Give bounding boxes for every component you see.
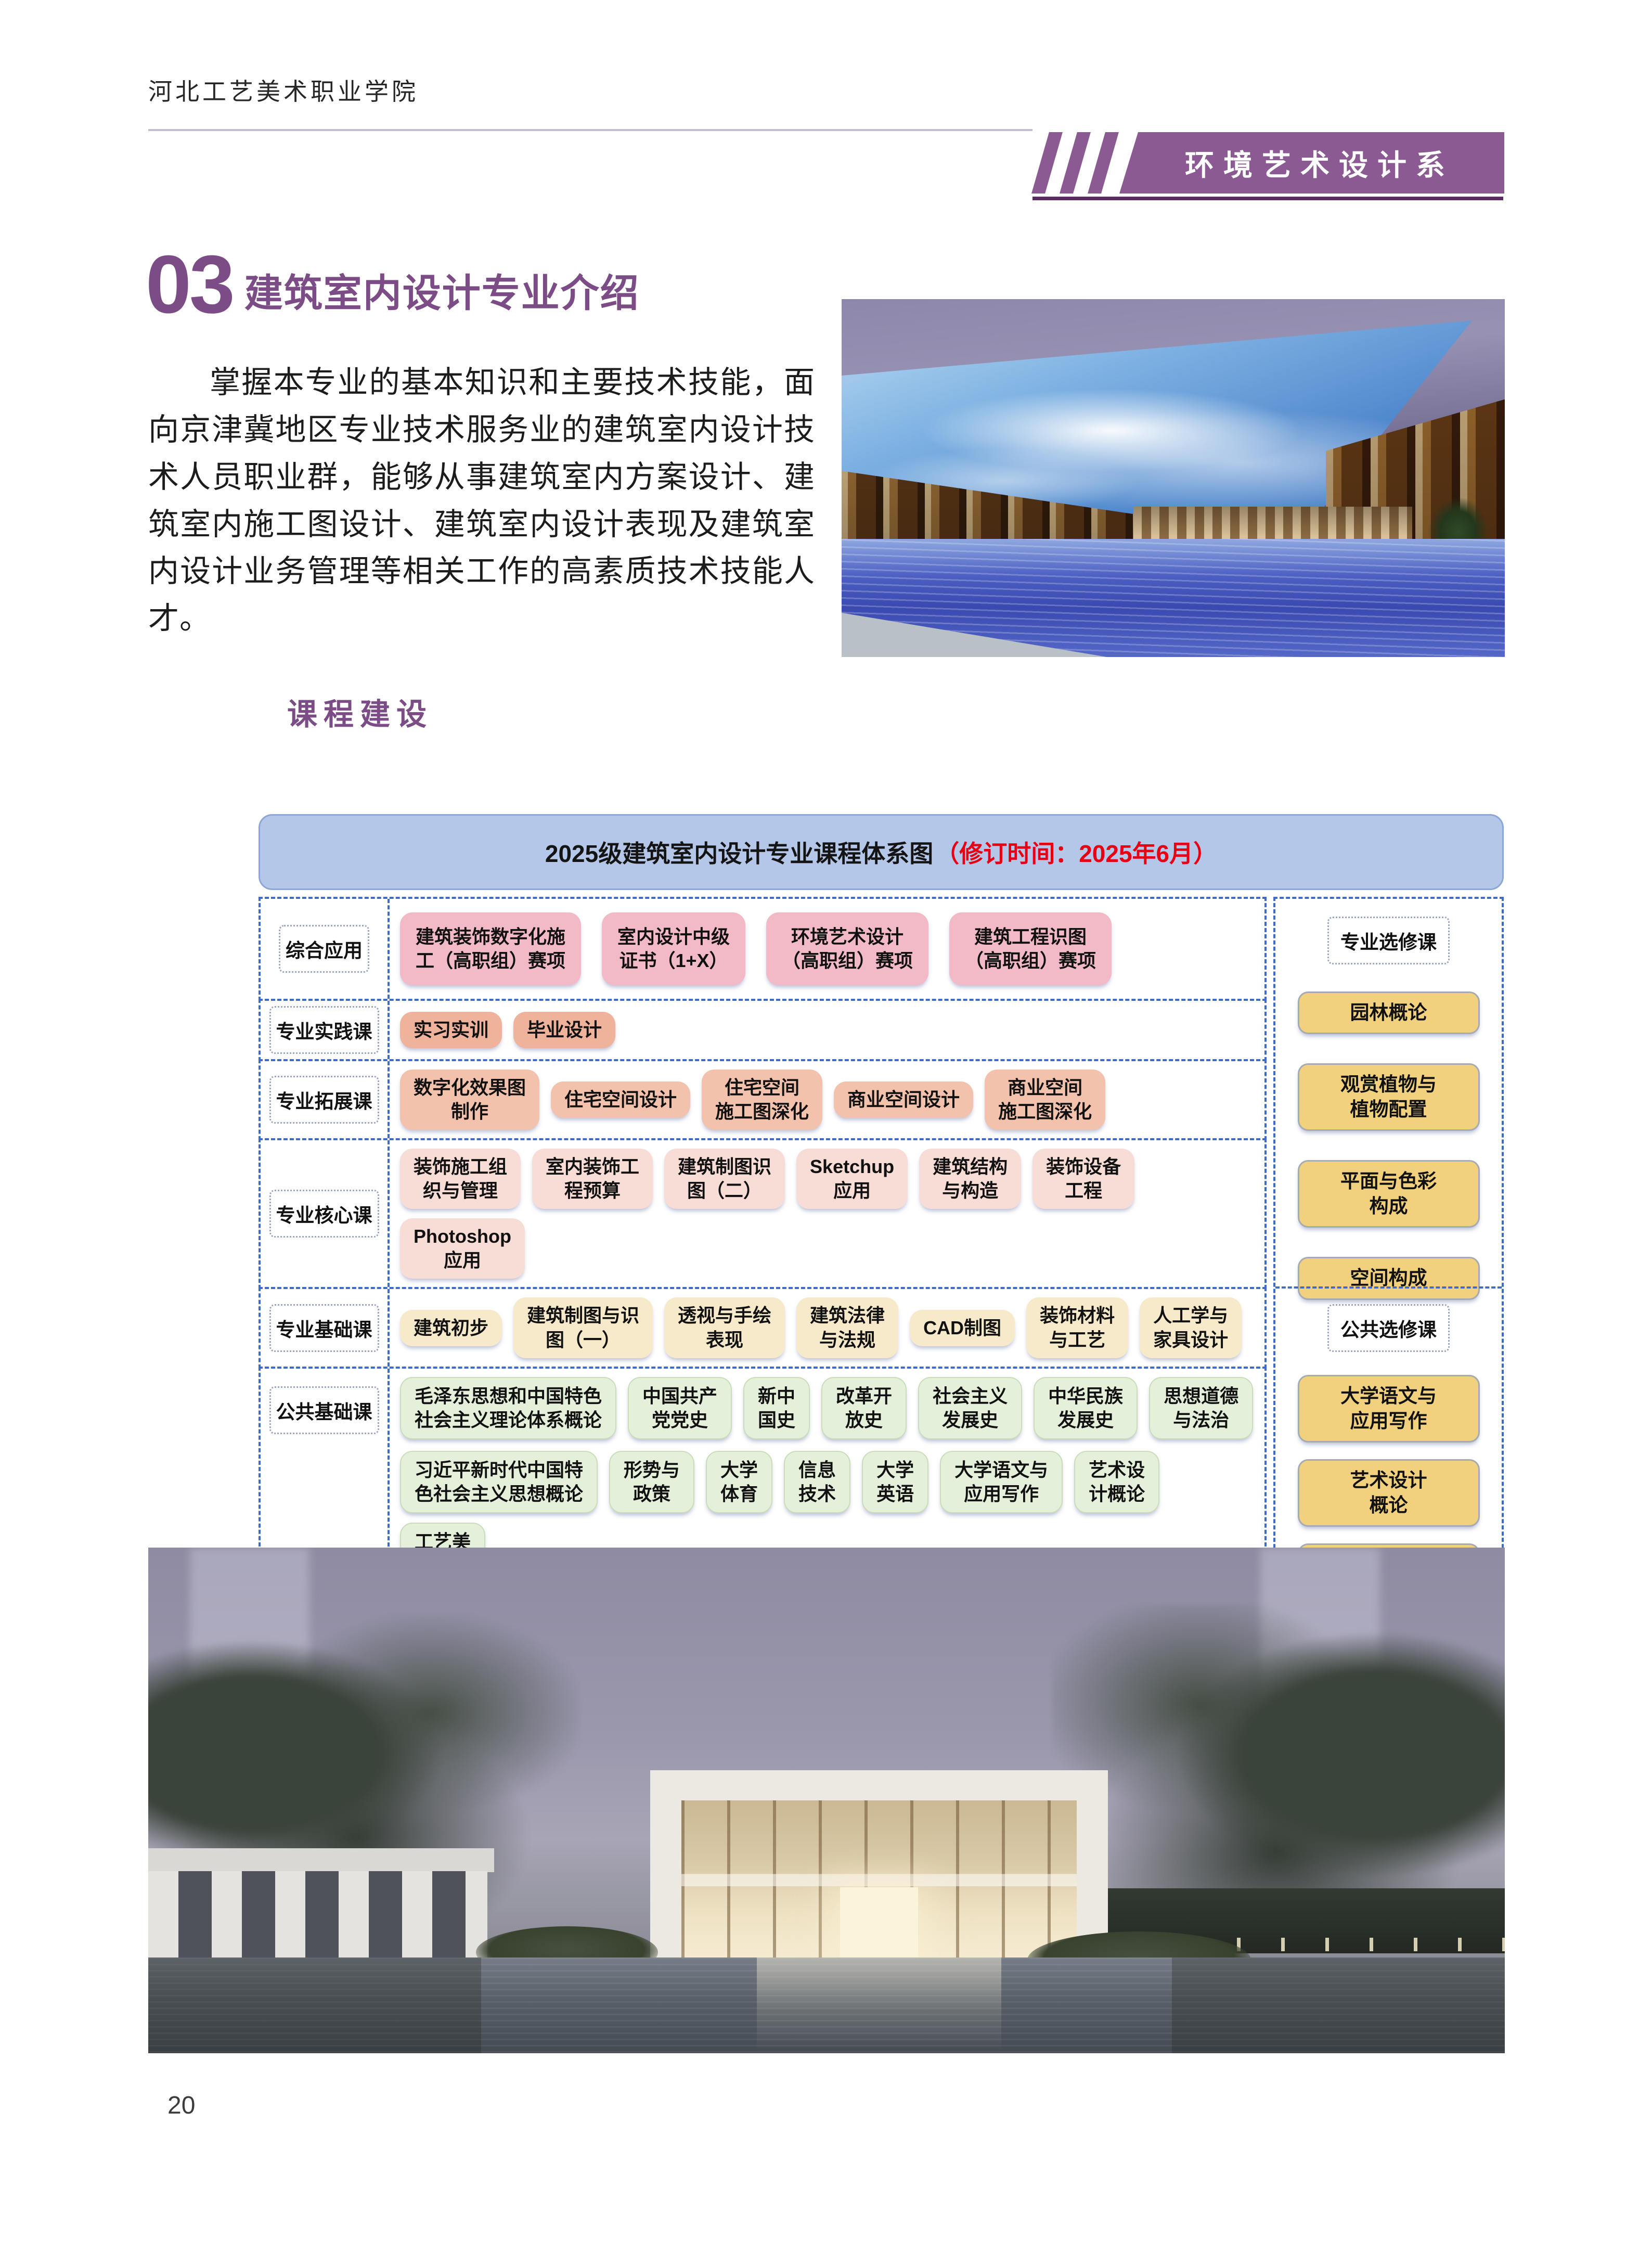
- course-line: 建筑初步建筑制图与识 图（一）透视与手绘 表现建筑法律 与法规CAD制图装饰材料…: [400, 1297, 1254, 1358]
- course-box: 信息 技术: [784, 1451, 850, 1513]
- course-box: 装饰施工组 织与管理: [400, 1149, 521, 1209]
- header-divider-line: [148, 129, 1032, 131]
- course-box: Photoshop 应用: [400, 1218, 525, 1279]
- course-box: 室内装饰工 程预算: [532, 1149, 653, 1209]
- course-lines: 实习实训毕业设计: [390, 1001, 1264, 1059]
- electives-label: 专业选修课: [1327, 917, 1450, 964]
- elective-course-box: 平面与色彩 构成: [1298, 1160, 1480, 1228]
- electives-section-professional: 专业选修课园林概论观赏植物与 植物配置平面与色彩 构成空间构成: [1275, 899, 1502, 1286]
- course-box: CAD制图: [910, 1310, 1015, 1346]
- course-box: 中华民族 发展史: [1034, 1377, 1138, 1439]
- row-label: 专业拓展课: [269, 1076, 379, 1124]
- course-box: 透视与手绘 表现: [664, 1297, 785, 1358]
- row-label-cell: 综合应用: [261, 899, 390, 999]
- course-box: 大学语文与 应用写作: [940, 1451, 1063, 1513]
- course-box: 形势与 政策: [609, 1451, 694, 1513]
- course-box: 大学 体育: [706, 1451, 772, 1513]
- row-label: 专业实践课: [269, 1006, 379, 1054]
- college-name: 河北工艺美术职业学院: [148, 73, 419, 107]
- course-box: 建筑结构 与构造: [919, 1149, 1021, 1209]
- indoor-pool-photo: [842, 299, 1505, 657]
- course-box: 习近平新时代中国特 色社会主义思想概论: [400, 1451, 598, 1513]
- course-box: 商业空间 施工图深化: [985, 1070, 1105, 1130]
- course-line: 建筑装饰数字化施 工（高职组）赛项室内设计中级 证书（1+X）环境艺术设计 （高…: [400, 912, 1254, 985]
- course-box: 建筑初步: [400, 1310, 502, 1346]
- course-box: 毛泽东思想和中国特色 社会主义理论体系概论: [400, 1377, 616, 1439]
- course-row: 专业实践课实习实训毕业设计: [259, 999, 1267, 1061]
- row-label-cell: 专业实践课: [261, 1001, 390, 1059]
- water-tree-reflection: [1172, 1957, 1505, 2053]
- banner-stripe-icon: [1088, 132, 1119, 194]
- course-box: 环境艺术设计 （高职组）赛项: [766, 912, 928, 985]
- water-light-reflection: [757, 1957, 1001, 2053]
- elective-course-box: 大学语文与 应用写作: [1298, 1375, 1480, 1443]
- course-box: 住宅空间设计: [551, 1081, 690, 1118]
- section-title-row: 03 建筑室内设计专业介绍: [146, 249, 640, 321]
- course-box: 实习实训: [400, 1012, 502, 1048]
- row-label-cell: 专业核心课: [261, 1140, 390, 1287]
- row-label: 专业核心课: [269, 1190, 379, 1238]
- course-line: 实习实训毕业设计: [400, 1012, 1254, 1048]
- course-lines: 建筑初步建筑制图与识 图（一）透视与手绘 表现建筑法律 与法规CAD制图装饰材料…: [390, 1289, 1264, 1366]
- course-box: 数字化效果图 制作: [400, 1070, 539, 1130]
- reflecting-pool: [148, 1957, 1505, 2053]
- pavilion-frame: [650, 1770, 1108, 1976]
- diagram-title-bar: 2025级建筑室内设计专业课程体系图 （修订时间：2025年6月）: [259, 814, 1504, 890]
- row-label-cell: 专业基础课: [261, 1289, 390, 1366]
- course-box: 人工学与 家具设计: [1140, 1297, 1242, 1358]
- course-box: 建筑制图与识 图（一）: [513, 1297, 653, 1358]
- intro-paragraph: 掌握本专业的基本知识和主要技术技能，面向京津冀地区专业技术服务业的建筑室内设计技…: [148, 359, 815, 642]
- row-label: 专业基础课: [269, 1304, 379, 1352]
- row-label: 综合应用: [279, 925, 369, 973]
- course-box: 建筑装饰数字化施 工（高职组）赛项: [400, 912, 581, 985]
- row-label: 公共基础课: [269, 1386, 379, 1434]
- course-box: 艺术设 计概论: [1074, 1451, 1159, 1513]
- course-box: 建筑制图识 图（二）: [664, 1149, 785, 1209]
- building-photo: [148, 1548, 1505, 2053]
- department-banner: 环境艺术设计系: [1119, 132, 1504, 194]
- course-row: 综合应用建筑装饰数字化施 工（高职组）赛项室内设计中级 证书（1+X）环境艺术设…: [259, 897, 1267, 1001]
- section-title: 建筑室内设计专业介绍: [244, 262, 640, 321]
- course-box: Sketchup 应用: [796, 1149, 908, 1209]
- elective-course-box: 艺术设计 概论: [1298, 1459, 1480, 1527]
- course-box: 装饰材料 与工艺: [1026, 1297, 1128, 1358]
- course-line: 毛泽东思想和中国特色 社会主义理论体系概论中国共产 党党史新中 国史改革开 放史…: [400, 1377, 1254, 1439]
- elective-course-box: 园林概论: [1298, 991, 1480, 1034]
- course-lines: 装饰施工组 织与管理室内装饰工 程预算建筑制图识 图（二）Sketchup 应用…: [390, 1140, 1264, 1287]
- course-box: 思想道德 与法治: [1149, 1377, 1253, 1439]
- diagram-revision-note: （修订时间：2025年6月）: [935, 835, 1217, 869]
- page-number: 20: [167, 2091, 195, 2120]
- courses-heading: 课程建设: [287, 690, 433, 733]
- banner-stripe-icon: [1031, 132, 1063, 194]
- course-box: 住宅空间 施工图深化: [702, 1070, 822, 1130]
- course-box: 改革开 放史: [821, 1377, 907, 1439]
- course-box: 室内设计中级 证书（1+X）: [602, 912, 745, 985]
- banner-underline: [1032, 197, 1503, 200]
- row-label-cell: 专业拓展课: [261, 1061, 390, 1138]
- course-box: 建筑法律 与法规: [796, 1297, 898, 1358]
- course-box: 社会主义 发展史: [918, 1377, 1022, 1439]
- course-line: 数字化效果图 制作住宅空间设计住宅空间 施工图深化商业空间设计商业空间 施工图深…: [400, 1070, 1254, 1130]
- course-lines: 数字化效果图 制作住宅空间设计住宅空间 施工图深化商业空间设计商业空间 施工图深…: [390, 1061, 1264, 1138]
- course-box: 建筑工程识图 （高职组）赛项: [949, 912, 1112, 985]
- section-number: 03: [146, 249, 233, 321]
- course-row: 专业基础课建筑初步建筑制图与识 图（一）透视与手绘 表现建筑法律 与法规CAD制…: [259, 1287, 1267, 1368]
- water-tree-reflection: [148, 1957, 481, 2053]
- colonnade-beam: [148, 1848, 494, 1872]
- course-box: 毕业设计: [513, 1012, 615, 1048]
- course-lines: 建筑装饰数字化施 工（高职组）赛项室内设计中级 证书（1+X）环境艺术设计 （高…: [390, 899, 1264, 999]
- course-box: 商业空间设计: [834, 1081, 973, 1118]
- course-box: 大学 英语: [862, 1451, 928, 1513]
- course-box: 新中 国史: [743, 1377, 810, 1439]
- course-row: 专业核心课装饰施工组 织与管理室内装饰工 程预算建筑制图识 图（二）Sketch…: [259, 1138, 1267, 1289]
- trees-right: [1052, 1605, 1505, 1938]
- brochure-page: 河北工艺美术职业学院 环境艺术设计系 03 建筑室内设计专业介绍 掌握本专业的基…: [0, 0, 1652, 2241]
- diagram-title: 2025级建筑室内设计专业课程体系图: [545, 835, 933, 869]
- electives-label: 公共选修课: [1327, 1304, 1450, 1352]
- course-box: 中国共产 党党史: [628, 1377, 732, 1439]
- course-box: 装饰设备 工程: [1032, 1149, 1134, 1209]
- pavilion-glass-facade: [681, 1800, 1077, 1976]
- course-line: 装饰施工组 织与管理室内装饰工 程预算建筑制图识 图（二）Sketchup 应用…: [400, 1149, 1254, 1279]
- elective-course-box: 观赏植物与 植物配置: [1298, 1063, 1480, 1131]
- colonnade-piers: [148, 1871, 487, 1970]
- course-row: 专业拓展课数字化效果图 制作住宅空间设计住宅空间 施工图深化商业空间设计商业空间…: [259, 1059, 1267, 1140]
- banner-stripe-icon: [1060, 132, 1091, 194]
